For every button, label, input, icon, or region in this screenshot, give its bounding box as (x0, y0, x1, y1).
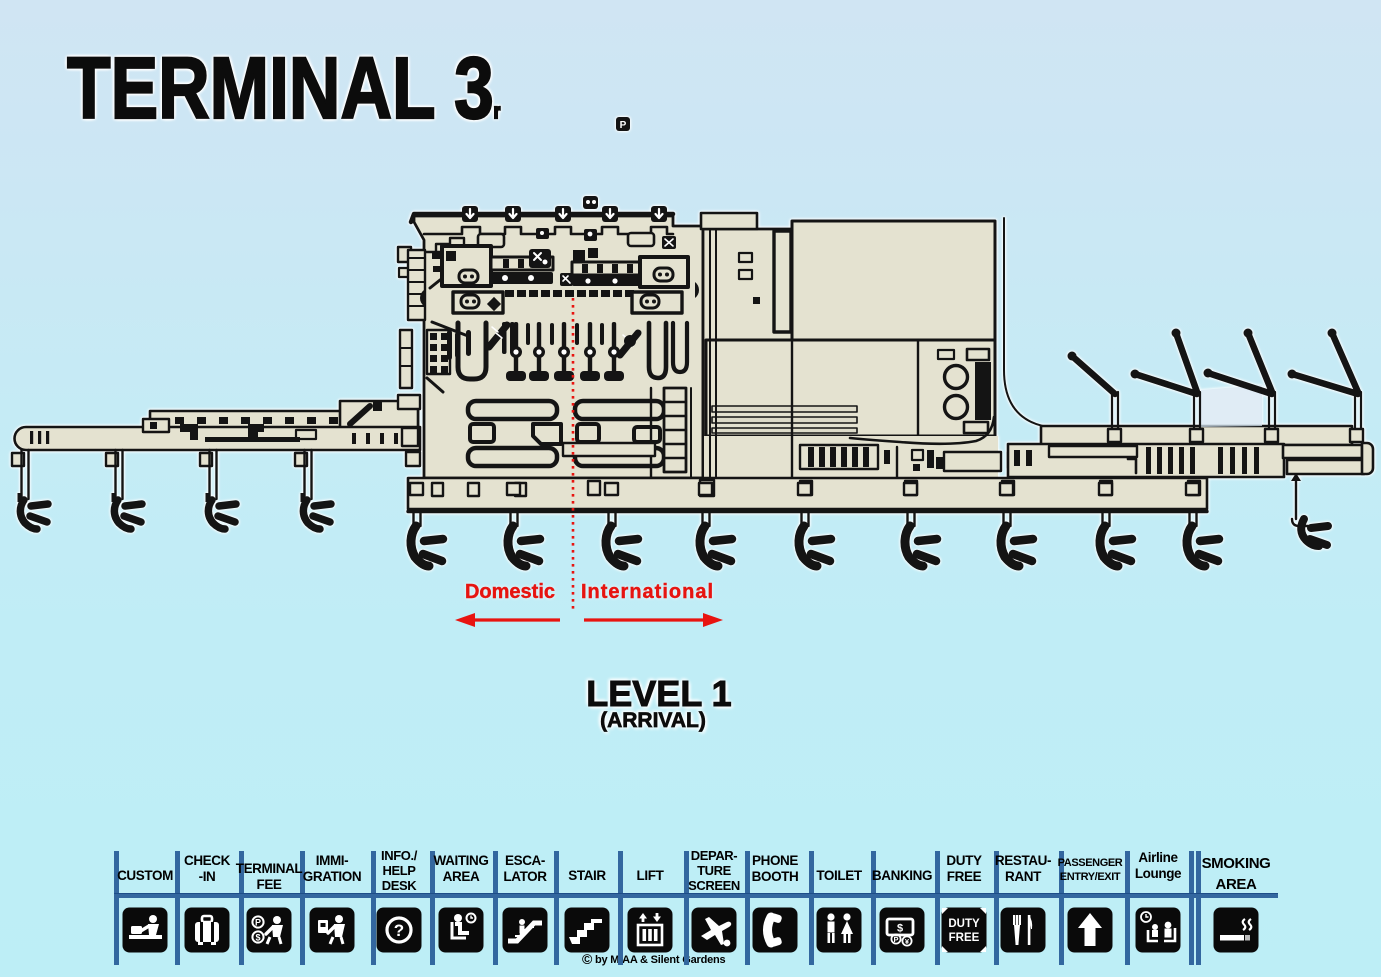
svg-text:$: $ (897, 923, 903, 935)
svg-text:?: ? (394, 921, 404, 940)
svg-text:DUTY: DUTY (948, 918, 980, 930)
svg-text:P: P (255, 918, 261, 928)
svg-text:P: P (620, 120, 627, 131)
svg-text:P: P (893, 935, 898, 944)
svg-text:FREE: FREE (949, 932, 980, 944)
svg-text:$: $ (255, 933, 260, 943)
